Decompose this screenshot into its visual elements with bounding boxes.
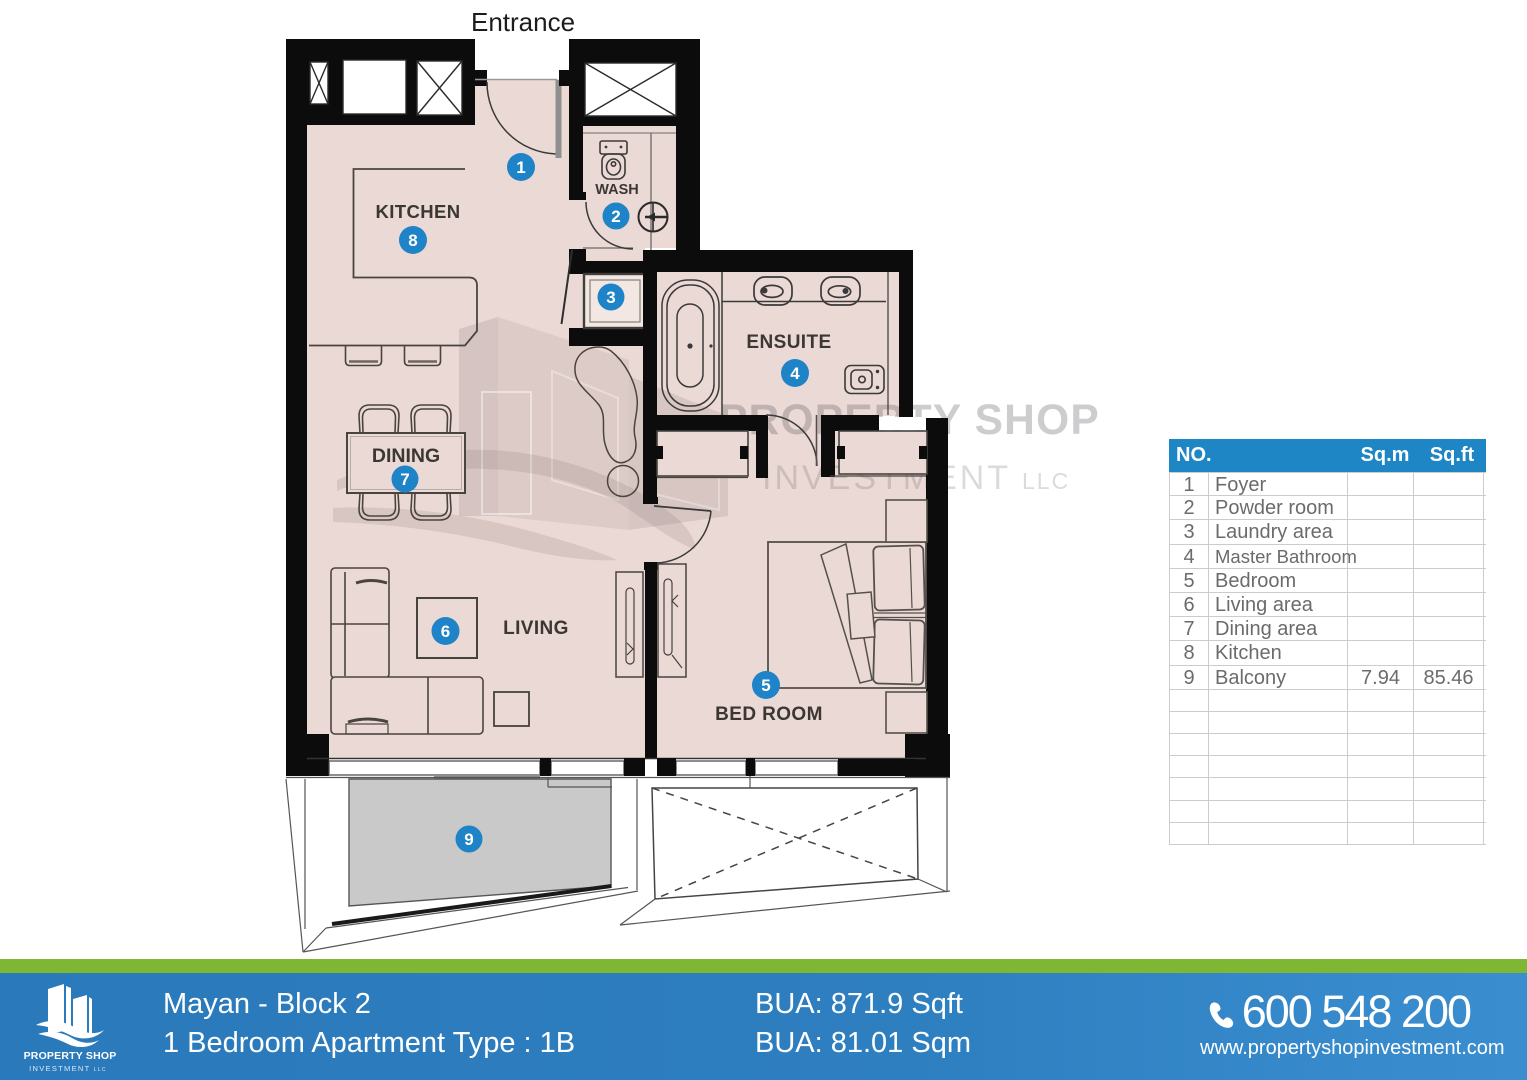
svg-text:8: 8 (408, 231, 417, 250)
svg-text:9: 9 (464, 830, 473, 849)
svg-text:DINING: DINING (372, 445, 440, 467)
svg-text:7: 7 (400, 470, 409, 489)
svg-text:6: 6 (441, 622, 450, 641)
svg-text:KITCHEN: KITCHEN (375, 201, 460, 222)
svg-text:PROPERTY SHOP: PROPERTY SHOP (24, 1050, 116, 1062)
svg-text:LIVING: LIVING (503, 618, 569, 639)
svg-text:4: 4 (790, 364, 800, 383)
svg-text:BED ROOM: BED ROOM (715, 704, 823, 725)
svg-text:LLC: LLC (1022, 468, 1070, 494)
svg-text:Entrance: Entrance (471, 7, 575, 37)
svg-text:5: 5 (761, 676, 770, 695)
svg-text:ENSUITE: ENSUITE (746, 332, 831, 353)
svg-text:INVESTMENT LLC: INVESTMENT LLC (29, 1064, 107, 1073)
svg-text:2: 2 (611, 207, 620, 226)
svg-text:WASH: WASH (595, 182, 639, 198)
svg-text:1: 1 (516, 158, 525, 177)
svg-text:3: 3 (606, 288, 615, 307)
